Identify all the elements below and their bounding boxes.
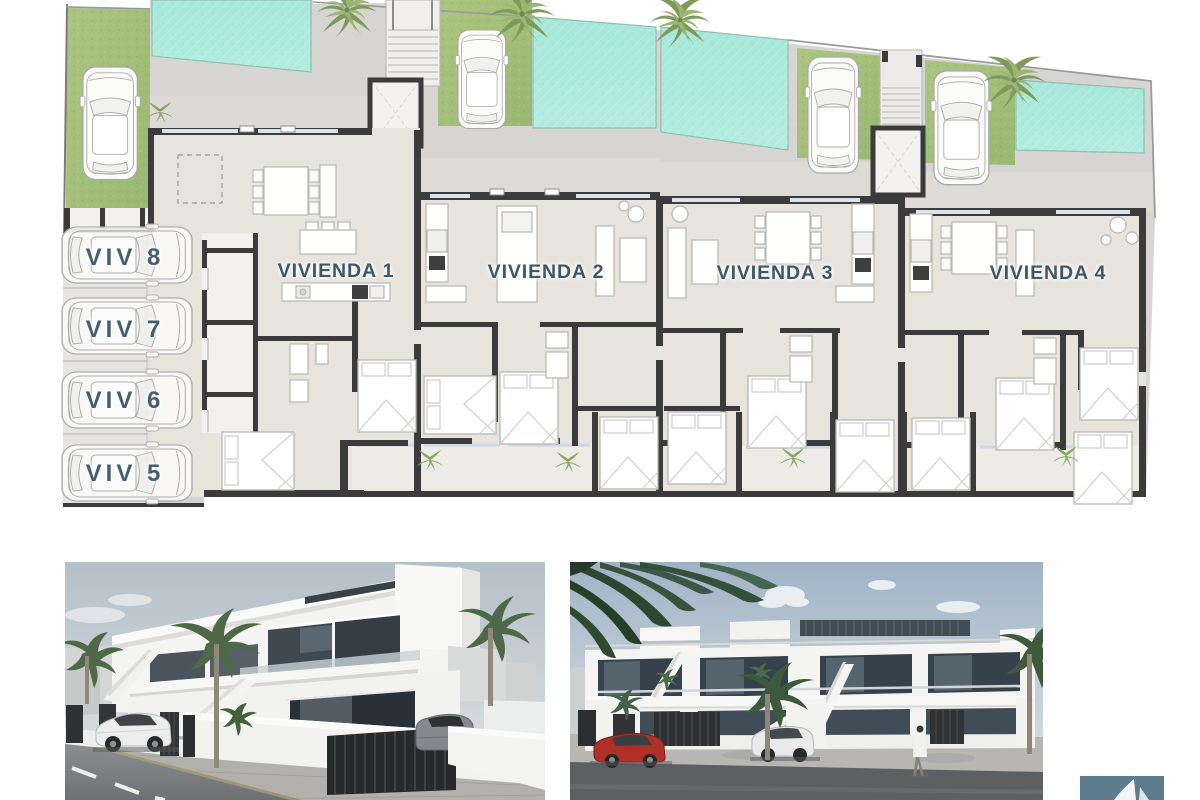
- svg-text:VIVIENDA 2: VIVIENDA 2: [488, 261, 605, 283]
- svg-text:VIVIENDA 4: VIVIENDA 4: [990, 262, 1107, 284]
- svg-text:VIVIENDA 1: VIVIENDA 1: [278, 260, 395, 282]
- svg-text:VIV 8: VIV 8: [86, 244, 165, 271]
- svg-text:VIV 7: VIV 7: [86, 316, 165, 343]
- svg-text:VIVIENDA 3: VIVIENDA 3: [717, 262, 834, 284]
- svg-text:VIV 6: VIV 6: [86, 387, 165, 414]
- svg-text:VIV 5: VIV 5: [86, 460, 165, 487]
